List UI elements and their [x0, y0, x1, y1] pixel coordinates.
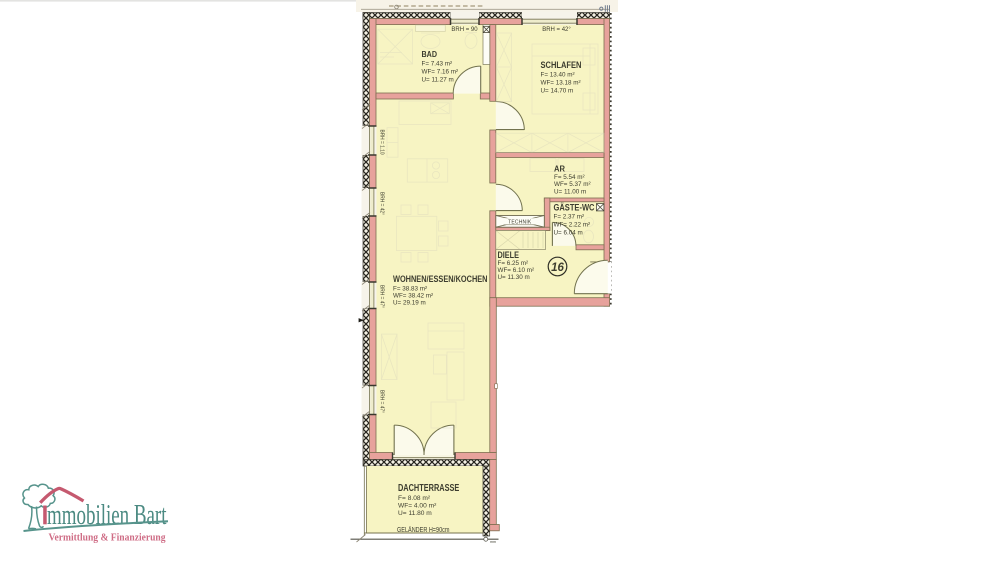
svg-text:SCHLAFEN: SCHLAFEN: [541, 60, 582, 71]
svg-text:WF= 7.16 m²: WF= 7.16 m²: [422, 69, 459, 76]
svg-text:mm: mm: [490, 540, 496, 544]
svg-text:AR: AR: [554, 163, 566, 173]
svg-text:F= 6.25 m²: F= 6.25 m²: [498, 260, 529, 267]
svg-text:DACHTERRASSE: DACHTERRASSE: [398, 483, 459, 494]
svg-text:F= 7.43 m²: F= 7.43 m²: [422, 60, 453, 67]
svg-text:BRH = 42°: BRH = 42°: [542, 27, 571, 33]
svg-text:WF= 2.22 m²: WF= 2.22 m²: [554, 222, 591, 229]
svg-text:Vermittlung & Finanzierung: Vermittlung & Finanzierung: [49, 533, 167, 544]
svg-text:F= 38.83 m²: F= 38.83 m²: [393, 285, 427, 292]
svg-text:F= 8.08 m²: F= 8.08 m²: [398, 495, 431, 502]
svg-text:U= 6.04 m: U= 6.04 m: [554, 230, 583, 237]
svg-text:BRH = 42°: BRH = 42°: [379, 192, 385, 215]
svg-text:GÄSTE-WC: GÄSTE-WC: [554, 202, 596, 212]
svg-text:F= 13.40 m²: F= 13.40 m²: [541, 71, 575, 78]
svg-text:BAD: BAD: [422, 49, 438, 59]
svg-text:DIELE: DIELE: [498, 250, 520, 260]
svg-text:U= 11.27 m: U= 11.27 m: [422, 77, 454, 84]
svg-text:BRH = 90: BRH = 90: [451, 27, 478, 33]
svg-text:U= 14.70 m: U= 14.70 m: [541, 87, 574, 94]
svg-text:U= 29.19 m: U= 29.19 m: [393, 299, 426, 306]
svg-text:U= 11.80 m: U= 11.80 m: [398, 510, 432, 517]
svg-text:U= 11.30 m: U= 11.30 m: [498, 274, 530, 281]
svg-text:GELÄNDER H=90cm: GELÄNDER H=90cm: [397, 526, 450, 534]
svg-text:BRH = 1.10: BRH = 1.10: [379, 130, 385, 155]
svg-text:BRH = 47°: BRH = 47°: [379, 390, 385, 413]
svg-text:mmobilien Bart: mmobilien Bart: [47, 500, 167, 531]
svg-text:BRH = 47°: BRH = 47°: [379, 285, 385, 308]
svg-text:F= 5.54 m²: F= 5.54 m²: [554, 174, 585, 181]
svg-text:WF= 5.37 m²: WF= 5.37 m²: [554, 181, 591, 188]
svg-text:WF= 4.00 m²: WF= 4.00 m²: [398, 502, 437, 509]
svg-text:F= 2.37 m²: F= 2.37 m²: [554, 214, 585, 221]
svg-text:WF= 38.42 m²: WF= 38.42 m²: [393, 292, 433, 299]
svg-text:WOHNEN/ESSEN/KOCHEN: WOHNEN/ESSEN/KOCHEN: [393, 274, 488, 284]
svg-text:WF= 6.10 m²: WF= 6.10 m²: [498, 267, 535, 274]
svg-text:16: 16: [551, 262, 564, 274]
svg-text:U= 11.00 m: U= 11.00 m: [554, 188, 586, 195]
svg-text:WF= 13.18 m²: WF= 13.18 m²: [541, 79, 581, 86]
